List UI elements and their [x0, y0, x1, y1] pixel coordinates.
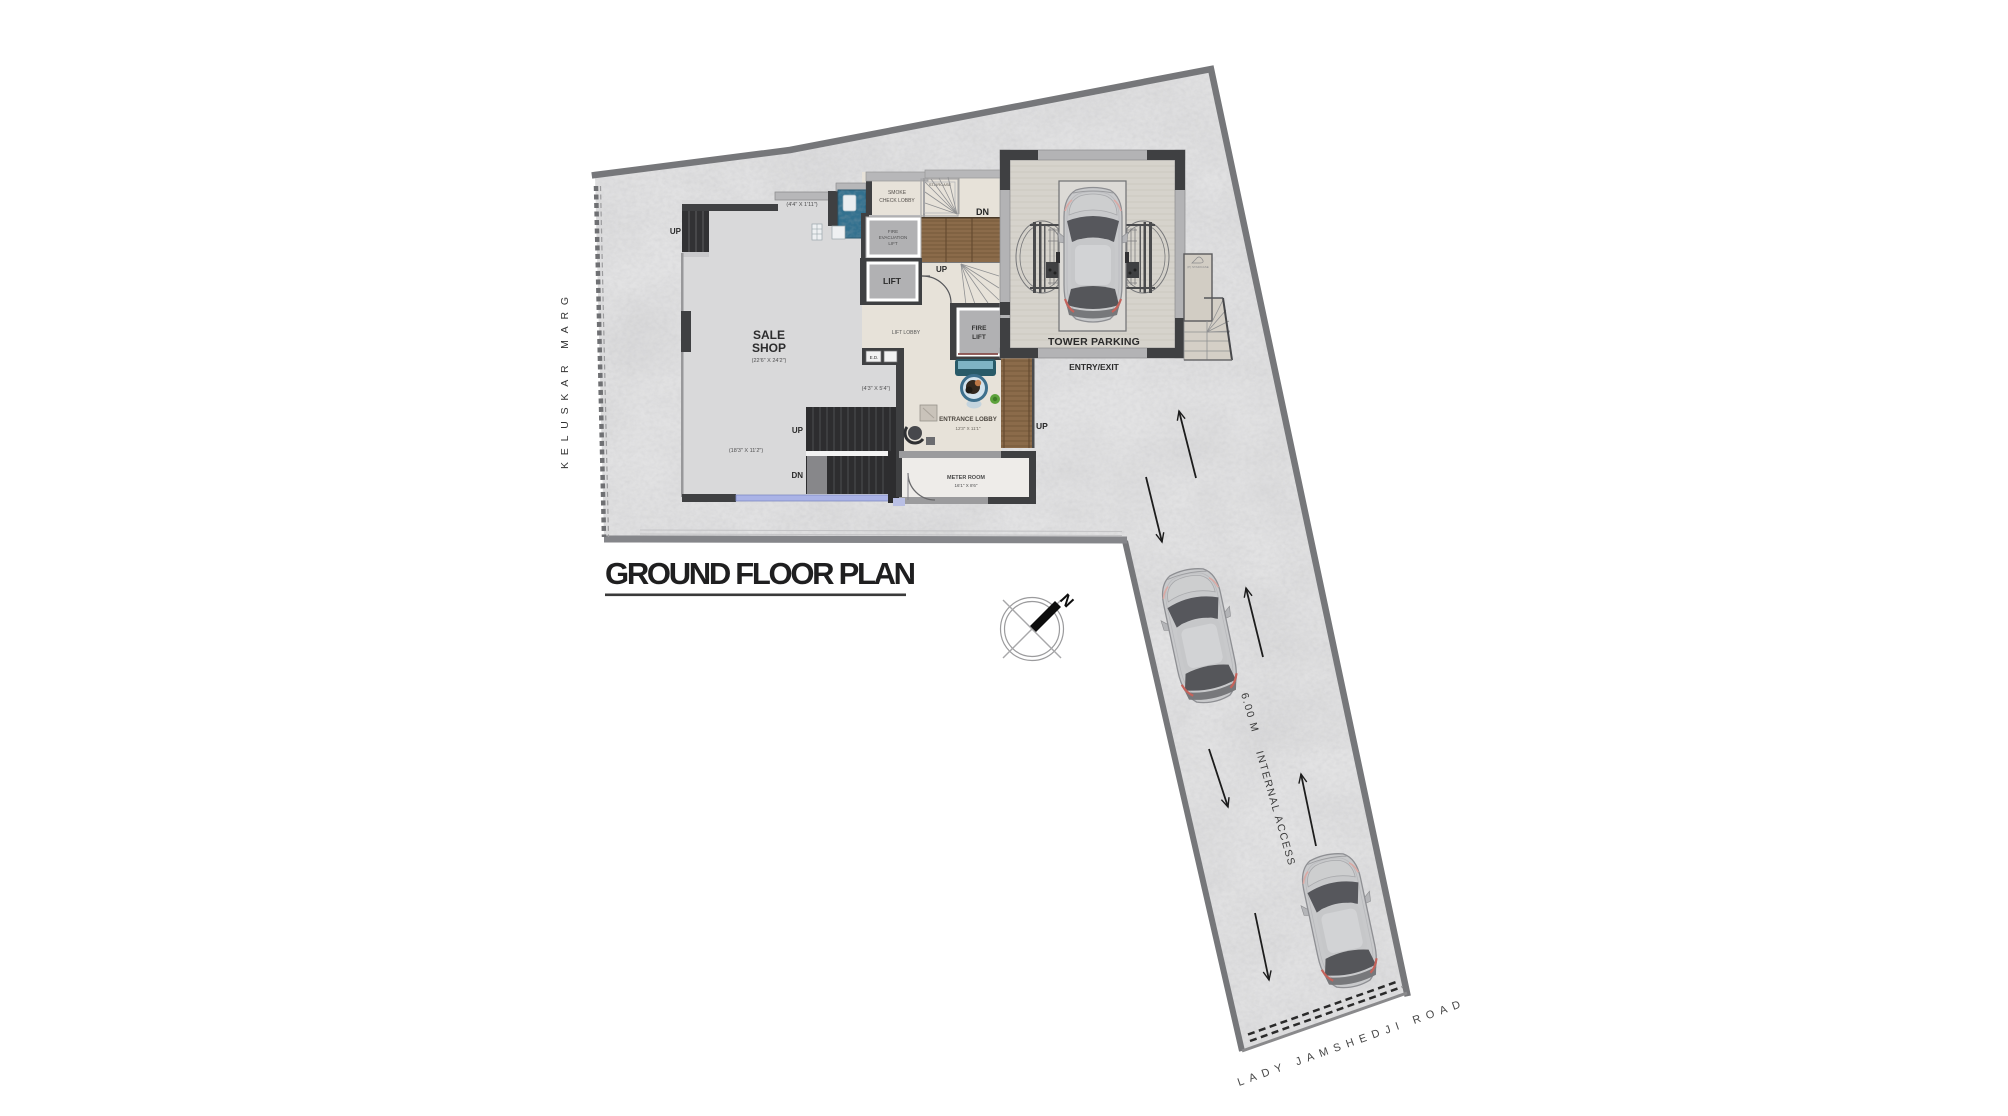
svg-text:E.D.: E.D. — [870, 355, 879, 360]
svg-text:(18'3" X 11'2"): (18'3" X 11'2") — [729, 448, 764, 454]
svg-text:12'3" X 11'1": 12'3" X 11'1" — [955, 426, 980, 431]
svg-text:STAIRCASE: STAIRCASE — [929, 182, 952, 187]
svg-text:SHOP: SHOP — [752, 341, 786, 355]
svg-text:UP: UP — [670, 227, 682, 236]
svg-text:LIFT: LIFT — [972, 334, 986, 341]
svg-text:(4'4" X 1'11"): (4'4" X 1'11") — [786, 202, 817, 208]
svg-text:KELUSKAR MARG: KELUSKAR MARG — [559, 290, 571, 469]
svg-text:GROUND FLOOR PLAN: GROUND FLOOR PLAN — [605, 556, 915, 591]
svg-text:SMOKE: SMOKE — [888, 190, 907, 196]
svg-text:TOWER PARKING: TOWER PARKING — [1048, 336, 1140, 348]
svg-text:CHECK LOBBY: CHECK LOBBY — [879, 198, 915, 204]
svg-text:LIFT LOBBY: LIFT LOBBY — [892, 330, 921, 336]
svg-text:METER ROOM: METER ROOM — [947, 475, 985, 481]
svg-text:UP: UP — [1036, 421, 1048, 431]
svg-text:DN: DN — [976, 207, 989, 217]
svg-text:UP: UP — [792, 426, 804, 435]
svg-text:FIRE: FIRE — [888, 229, 898, 234]
svg-text:UP: UP — [936, 265, 948, 274]
svg-text:LIFT: LIFT — [888, 241, 898, 246]
svg-text:ENTRY/EXIT: ENTRY/EXIT — [1069, 362, 1120, 372]
svg-text:EVACUATION: EVACUATION — [879, 235, 908, 240]
svg-text:(4'3" X 5'4"): (4'3" X 5'4") — [862, 386, 891, 392]
svg-text:SALE: SALE — [753, 328, 785, 342]
svg-text:DN: DN — [791, 471, 803, 480]
svg-text:16'1" X 8'6": 16'1" X 8'6" — [955, 483, 978, 488]
svg-text:LIFT: LIFT — [883, 276, 902, 286]
svg-text:ENTRANCE LOBBY: ENTRANCE LOBBY — [939, 416, 998, 423]
svg-text:FIRE: FIRE — [972, 325, 987, 332]
svg-text:(22'6" X 24'2"): (22'6" X 24'2") — [752, 358, 787, 364]
svg-text:(P) STAIRCASE: (P) STAIRCASE — [1187, 265, 1209, 269]
